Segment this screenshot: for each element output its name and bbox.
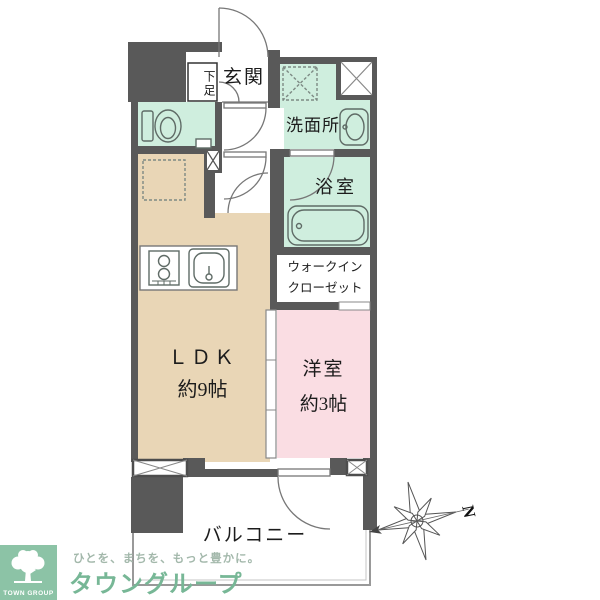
bathroom-door-leaf [290, 150, 334, 156]
wall-genkan-right [268, 50, 280, 108]
window-ldk [133, 460, 187, 476]
label-western-line1: 洋室 [287, 352, 360, 387]
bathroom-floor [284, 157, 370, 247]
label-western-room: 洋室 約3帖 [287, 352, 360, 422]
label-wic-line1: ウォークイン [280, 257, 370, 278]
label-ldk: ＬＤＫ 約9帖 [145, 342, 260, 406]
badge-label: TOWN GROUP [3, 590, 53, 597]
corridor-door1-leaf [224, 103, 266, 108]
wall-bathroom-left [277, 157, 284, 247]
label-shoe-cabinet: 下足 [189, 67, 216, 101]
balcony-door-leaf [278, 469, 330, 476]
floorplan-drawing: N [0, 0, 600, 600]
compass-north-letter: N [458, 503, 479, 520]
label-genkan: 玄関 [220, 66, 268, 90]
label-ldk-line1: ＬＤＫ [145, 342, 260, 374]
floorplan-image: N 玄関 下足 洗面所 浴室 ウォークイン クローゼット ＬＤＫ 約9帖 洋室 … [0, 0, 600, 600]
partition-panel [266, 310, 276, 458]
tree-shape [12, 550, 45, 583]
wall-bath-top-right [334, 149, 377, 157]
label-wic-line2: クローゼット [280, 278, 370, 299]
wall-wic-top [277, 247, 377, 255]
tree-icon [0, 545, 57, 585]
corridor-door2-arc [224, 157, 266, 199]
wall-left [131, 102, 138, 462]
kitchen-icon [140, 246, 237, 290]
toilet-controller [196, 139, 211, 148]
wall-pillar-bottom-left [131, 477, 183, 533]
sliding-partition [266, 310, 276, 458]
label-washroom: 洗面所 [280, 115, 346, 136]
corridor-door2-leaf [224, 152, 266, 157]
ldk-door-arc [228, 173, 268, 213]
wall-corridor-left [215, 102, 222, 148]
label-ldk-line2: 約9帖 [145, 374, 260, 406]
compass-rose: N [360, 470, 479, 571]
wall-wic-bottom [277, 302, 339, 310]
wall-bottom-ldk [205, 469, 278, 477]
label-balcony: バルコニー [190, 524, 320, 548]
window-western-room [347, 460, 367, 475]
label-bathroom: 浴室 [306, 176, 366, 199]
balcony-door-arc [278, 477, 330, 529]
pipe-space-box [336, 57, 377, 100]
brand-company-name: タウングループ [69, 564, 243, 599]
wall-sliver [204, 173, 215, 218]
corridor-door1-arc [224, 108, 266, 150]
closet-opening [339, 302, 370, 310]
wall-bottom-step-right [330, 458, 347, 475]
entrance-door-arc [219, 8, 268, 57]
wall-right [370, 64, 377, 458]
small-duct-box [204, 148, 222, 173]
label-western-line2: 約3帖 [287, 387, 360, 422]
label-walk-in-closet: ウォークイン クローゼット [280, 257, 370, 299]
wall-ldk-right [270, 149, 277, 310]
town-group-logo-badge: TOWN GROUP [0, 545, 57, 600]
compass-star [360, 470, 477, 571]
